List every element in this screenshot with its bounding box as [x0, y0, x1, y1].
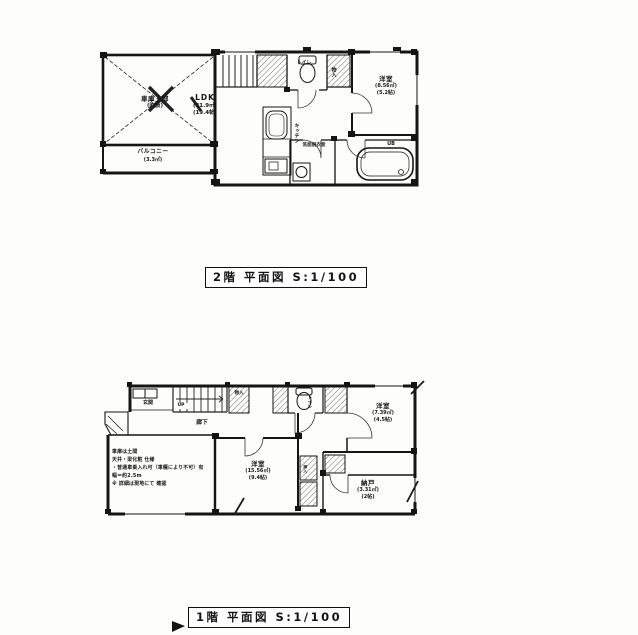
closet-hatch — [273, 386, 288, 413]
stairs-icon — [215, 55, 257, 87]
room-note: (吹抜) — [125, 103, 185, 110]
corner-mark — [172, 621, 185, 632]
floor2-plan-drawing — [95, 45, 425, 195]
room-label-bedroom2f: 洋室 (8.56㎡) (5.2帖) — [357, 75, 415, 96]
room-label-toilet: トイレ — [289, 60, 319, 67]
garage-note-line: 車庫は土間 — [112, 448, 214, 456]
floor2-plan: 車庫上部 (吹抜) バルコニー (3.3㎡) LDK (31.9㎡) (19.4… — [95, 45, 425, 195]
room-area: (3.3㎡) — [123, 157, 183, 164]
kitchen-sink-icon — [263, 107, 291, 175]
room-name: バルコニー — [123, 149, 183, 157]
porch — [105, 412, 128, 435]
floor1-caption: 1階 平面図 S:1/100 — [188, 607, 350, 628]
room-label-void: 車庫上部 (吹抜) — [125, 95, 185, 111]
room-label-closet-b: 押入 — [303, 459, 308, 479]
room-name: LDK — [180, 93, 230, 103]
room-area: (4.5帖) — [353, 417, 413, 424]
room-area: (9.4帖) — [233, 475, 283, 482]
garage-notes: 車庫は土間 天井・梁化粧 仕様 ・普通車乗入れ可（車種により不可）有 幅＝約2.… — [112, 448, 214, 488]
room-label-bedroom-b: 洋室 (7.39㎡) (4.5帖) — [353, 402, 413, 423]
closet-hatch — [325, 386, 347, 413]
stairs-up-label: UP — [174, 403, 188, 409]
floorplan-page: 車庫上部 (吹抜) バルコニー (3.3㎡) LDK (31.9㎡) (19.4… — [0, 0, 638, 635]
room-area: (19.4帖) — [180, 110, 230, 117]
room-label-hallway: 廊下 — [187, 420, 217, 428]
floor1-plan: 玄関 廊下 UP 物入 トイレ 洋室 (7.39㎡) (4.5帖) 洋室 (15… — [95, 378, 425, 530]
closet-hatch — [257, 55, 287, 87]
room-label-bedroom-a: 洋室 (15.56㎡) (9.4帖) — [233, 460, 283, 481]
closet-hatch — [325, 455, 345, 473]
room-label-washroom: 洗面脱衣室 — [291, 143, 337, 149]
garage-note-line: 天井・梁化粧 仕様 — [112, 456, 214, 464]
closet-hatch — [300, 482, 317, 506]
room-label-toilet: トイレ — [306, 389, 312, 415]
bathtub-icon — [335, 140, 417, 180]
room-label-ldk: LDK (31.9㎡) (19.4帖) — [180, 93, 230, 117]
door-arc — [298, 90, 316, 108]
floor2-caption: 2階 平面図 S:1/100 — [205, 267, 367, 288]
garage-note-line: 幅＝約2.5m — [112, 472, 214, 480]
room-area: (31.9㎡) — [180, 103, 230, 110]
room-area: (5.2帖) — [357, 90, 415, 97]
room-label-entrance: 玄関 — [133, 400, 163, 407]
room-label-storage: 納戸 (3.31㎡) (2帖) — [343, 479, 393, 500]
room-label-closet-a: 物入 — [228, 391, 250, 397]
garage-note-line: ・普通車乗入れ可（車種により不可）有 — [112, 464, 214, 472]
room-label-bath: UB — [381, 141, 401, 148]
door-arc — [347, 140, 365, 158]
garage-note-line: ※ 詳細は現地にて 確認 — [112, 480, 214, 488]
washing-machine-icon — [293, 163, 310, 181]
room-label-closet: 物入 — [330, 58, 337, 86]
room-label-balcony: バルコニー (3.3㎡) — [123, 149, 183, 163]
room-area: (2帖) — [343, 494, 393, 501]
